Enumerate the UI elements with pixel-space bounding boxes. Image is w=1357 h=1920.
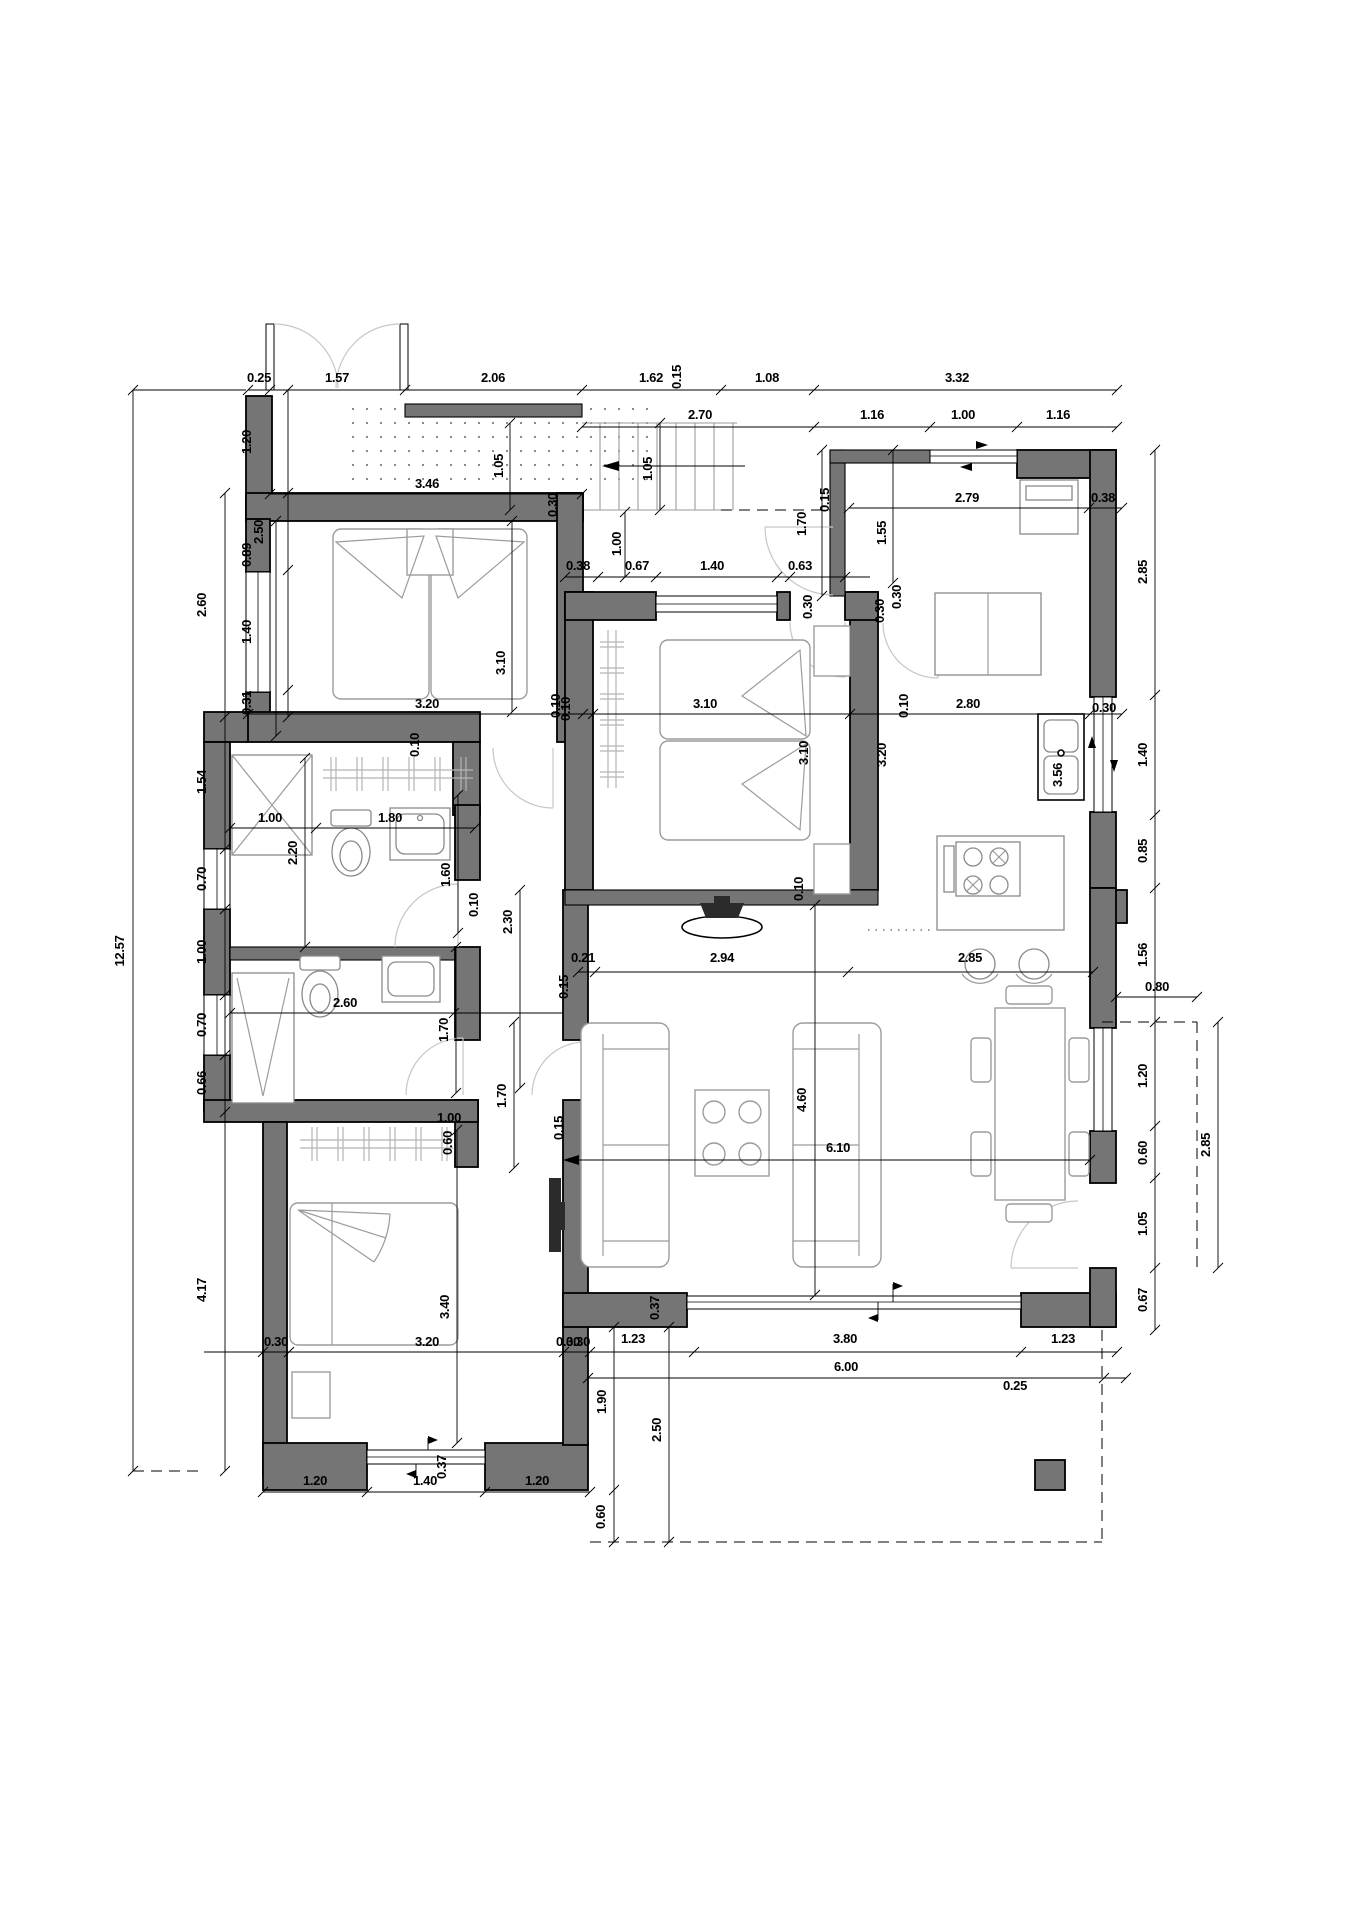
dimension-label: 4.60	[794, 1088, 809, 1112]
wall-segment	[246, 712, 480, 742]
wall-segment	[263, 1122, 287, 1476]
dimension-label: 0.66	[194, 1071, 209, 1095]
dimension-label: 1.54	[194, 769, 209, 794]
bedroom3-door	[532, 1042, 585, 1095]
dimension-label: 0.30	[889, 585, 904, 609]
dimension-label: 0.21	[571, 950, 595, 965]
chair	[1069, 1038, 1089, 1082]
dimension-label: 1.56	[1135, 943, 1150, 967]
dimension-label: 0.89	[239, 543, 254, 567]
dimension-label: 1.40	[413, 1473, 437, 1488]
chair	[1069, 1132, 1089, 1176]
terrace-pillar	[1035, 1460, 1065, 1490]
shower	[232, 973, 294, 1103]
dimension-label: 6.00	[834, 1359, 858, 1374]
dimension-label: 0.15	[556, 975, 571, 999]
dimension-label: 2.94	[710, 950, 735, 965]
dimension-label: 1.70	[794, 512, 809, 536]
dimension-label: 1.00	[437, 1110, 461, 1125]
dimension-label: 1.40	[239, 620, 254, 644]
dimension-label: 2.50	[251, 520, 266, 544]
dimension-label: 0.10	[896, 694, 911, 718]
dimension-label: 0.38	[1091, 490, 1115, 505]
dimension-label: 1.57	[325, 370, 349, 385]
dimension-label: 0.38	[566, 558, 590, 573]
dimension-label: 0.70	[194, 1013, 209, 1037]
wall-segment	[830, 450, 930, 463]
dimension-label: 2.85	[1198, 1133, 1213, 1157]
dimension-label: 0.31	[239, 691, 254, 715]
wardrobe-rail	[300, 1127, 453, 1161]
dimension-label: 0.67	[1135, 1288, 1150, 1312]
dimension-label: 0.60	[1135, 1141, 1150, 1165]
wall-segment	[777, 592, 790, 620]
wall-segment	[563, 890, 588, 1040]
wall-segment	[1090, 1268, 1116, 1327]
chair	[1006, 1204, 1052, 1222]
dimension-label: 3.46	[415, 476, 439, 491]
dimension-label: 0.85	[1135, 839, 1150, 863]
dimension-label: 1.62	[639, 370, 663, 385]
living-room-furniture	[581, 896, 1089, 1267]
entry-wall-stub	[830, 450, 845, 596]
dimension-label: 3.40	[437, 1295, 452, 1319]
dimension-label: 1.05	[1135, 1212, 1150, 1236]
toilet-tank	[300, 956, 340, 970]
dimension-label: 2.85	[1135, 560, 1150, 584]
towel-rail	[323, 757, 473, 791]
dimension-label: 0.30	[264, 1334, 288, 1349]
dimension-label: 1.16	[1046, 407, 1070, 422]
dimension-label: 1.20	[525, 1473, 549, 1488]
faucet	[418, 816, 423, 821]
tv	[549, 1178, 561, 1252]
dimension-label: 1.60	[438, 863, 453, 887]
dimension-label: 2.79	[955, 490, 979, 505]
dimension-label: 2.20	[285, 841, 300, 865]
faucet	[1058, 750, 1064, 756]
wall-segment	[1090, 812, 1116, 888]
dimension-label: 1.55	[874, 521, 889, 545]
dimension-label: 3.56	[1050, 763, 1065, 787]
dimension-label: 0.15	[669, 365, 684, 389]
bathroom1-door	[395, 884, 458, 947]
dimension-label: 1.80	[378, 810, 402, 825]
dimension-label: 0.60	[593, 1505, 608, 1529]
living-sliding-door	[687, 1282, 1021, 1322]
dimension-label: 3.32	[945, 370, 969, 385]
wardrobe-rail	[600, 630, 624, 788]
floor-plan-page: 0.251.572.061.621.083.322.701.161.001.16…	[0, 0, 1357, 1920]
dimension-label: 1.40	[1135, 743, 1150, 767]
wall-segment	[565, 592, 656, 620]
wall-segment	[1090, 888, 1116, 1028]
dimension-label: 1.23	[621, 1331, 645, 1346]
dimension-label: 3.20	[415, 696, 439, 711]
knob-strip	[944, 846, 954, 892]
dimension-label: 3.20	[874, 743, 889, 767]
bathroom2-door	[406, 1038, 463, 1095]
master-bedroom-door	[493, 748, 553, 808]
dimension-label: 0.30	[1092, 700, 1116, 715]
toilet-tank	[331, 810, 371, 826]
dimension-label: 0.25	[1003, 1378, 1027, 1393]
dimension-label: 1.05	[491, 454, 506, 478]
dining-table	[995, 1008, 1065, 1200]
chair	[971, 1132, 991, 1176]
bed-mattress	[290, 1203, 458, 1345]
wall-segment	[1090, 450, 1116, 697]
dimension-label: 1.20	[239, 430, 254, 454]
bathroom2-fixtures	[232, 956, 440, 1103]
nightstand	[814, 844, 850, 894]
wall-segment	[1090, 1131, 1116, 1183]
wall-segment	[563, 1293, 687, 1327]
dimension-label: 0.15	[817, 488, 832, 512]
wall-segment	[246, 493, 583, 521]
dimension-label: 0.10	[466, 893, 481, 917]
kitchen-north-window	[930, 441, 1017, 471]
dimension-label: 0.63	[788, 558, 812, 573]
parapet-wall	[405, 404, 582, 417]
dimension-label: 0.15	[551, 1116, 566, 1140]
wall-segment	[204, 742, 230, 849]
dimension-label: 0.30	[566, 1334, 590, 1349]
dimension-label: 0.25	[247, 370, 271, 385]
dimension-label: 3.10	[796, 741, 811, 765]
dimension-label: 2.60	[333, 995, 357, 1010]
dimension-label: 1.08	[755, 370, 779, 385]
dimension-label: 2.30	[500, 910, 515, 934]
dimension-label: 0.10	[791, 877, 806, 901]
dimension-label: 3.20	[415, 1334, 439, 1349]
dimension-label: 4.17	[194, 1278, 209, 1302]
kitchen-fixtures	[868, 480, 1084, 983]
cooktop	[944, 842, 1020, 896]
dimension-label: 1.16	[860, 407, 884, 422]
dimension-label: 2.60	[194, 593, 209, 617]
dimension-label: 1.70	[436, 1018, 451, 1042]
bed-center-table	[407, 529, 453, 575]
dimension-label: 0.80	[1145, 979, 1169, 994]
wall-segment	[565, 592, 593, 890]
dimension-label: 2.70	[688, 407, 712, 422]
dimension-label: 1.00	[258, 810, 282, 825]
sink-basin	[388, 962, 434, 996]
kitchen-door	[883, 623, 938, 678]
dimension-label: 3.80	[833, 1331, 857, 1346]
bedroom2-window	[656, 596, 777, 612]
wall-segment	[455, 947, 480, 1040]
dimension-label: 0.60	[440, 1131, 455, 1155]
wall-segment	[455, 805, 480, 880]
dimension-label: 0.30	[800, 595, 815, 619]
bedroom3-window	[367, 1436, 485, 1478]
dimension-label: 12.57	[112, 935, 127, 966]
dimension-label: 1.20	[1135, 1064, 1150, 1088]
dimension-label: 0.70	[194, 867, 209, 891]
dimension-label: 0.10	[407, 733, 422, 757]
tv-bracket	[561, 1202, 565, 1230]
nightstand	[814, 626, 850, 676]
chair	[1006, 986, 1052, 1004]
dining-table-set	[971, 986, 1089, 1222]
dimension-label: 0.67	[625, 558, 649, 573]
dimension-label: 3.10	[493, 651, 508, 675]
dimension-label: 0.30	[872, 599, 887, 623]
living-east-window	[1094, 1028, 1112, 1131]
dimension-label: 2.80	[956, 696, 980, 711]
dimension-label: 1.23	[1051, 1331, 1075, 1346]
dimension-label: 1.00	[609, 532, 624, 556]
dimension-label: 2.50	[649, 1418, 664, 1442]
dimension-label: 1.90	[594, 1390, 609, 1414]
chair	[971, 1038, 991, 1082]
nightstand	[292, 1372, 330, 1418]
dimension-label: 0.37	[647, 1296, 662, 1320]
coffee-table	[695, 1090, 769, 1176]
dimension-label: 2.06	[481, 370, 505, 385]
wall-segment	[850, 592, 878, 890]
dimension-label: 1.20	[303, 1473, 327, 1488]
dimension-label: 1.70	[494, 1084, 509, 1108]
dimension-label: 3.10	[693, 696, 717, 711]
dimension-label: 1.40	[700, 558, 724, 573]
dimension-label: 0.30	[545, 493, 560, 517]
bedroom3-furniture	[290, 1127, 565, 1418]
dimension-label: 1.00	[951, 407, 975, 422]
dimension-label: 1.00	[194, 940, 209, 964]
floor-plan-drawing: 0.251.572.061.621.083.322.701.161.001.16…	[0, 0, 1357, 1920]
dimension-label: 6.10	[826, 1140, 850, 1155]
dimension-label: 2.85	[958, 950, 982, 965]
dimension-label: 0.10	[548, 694, 563, 718]
dimension-label: 1.05	[640, 457, 655, 481]
